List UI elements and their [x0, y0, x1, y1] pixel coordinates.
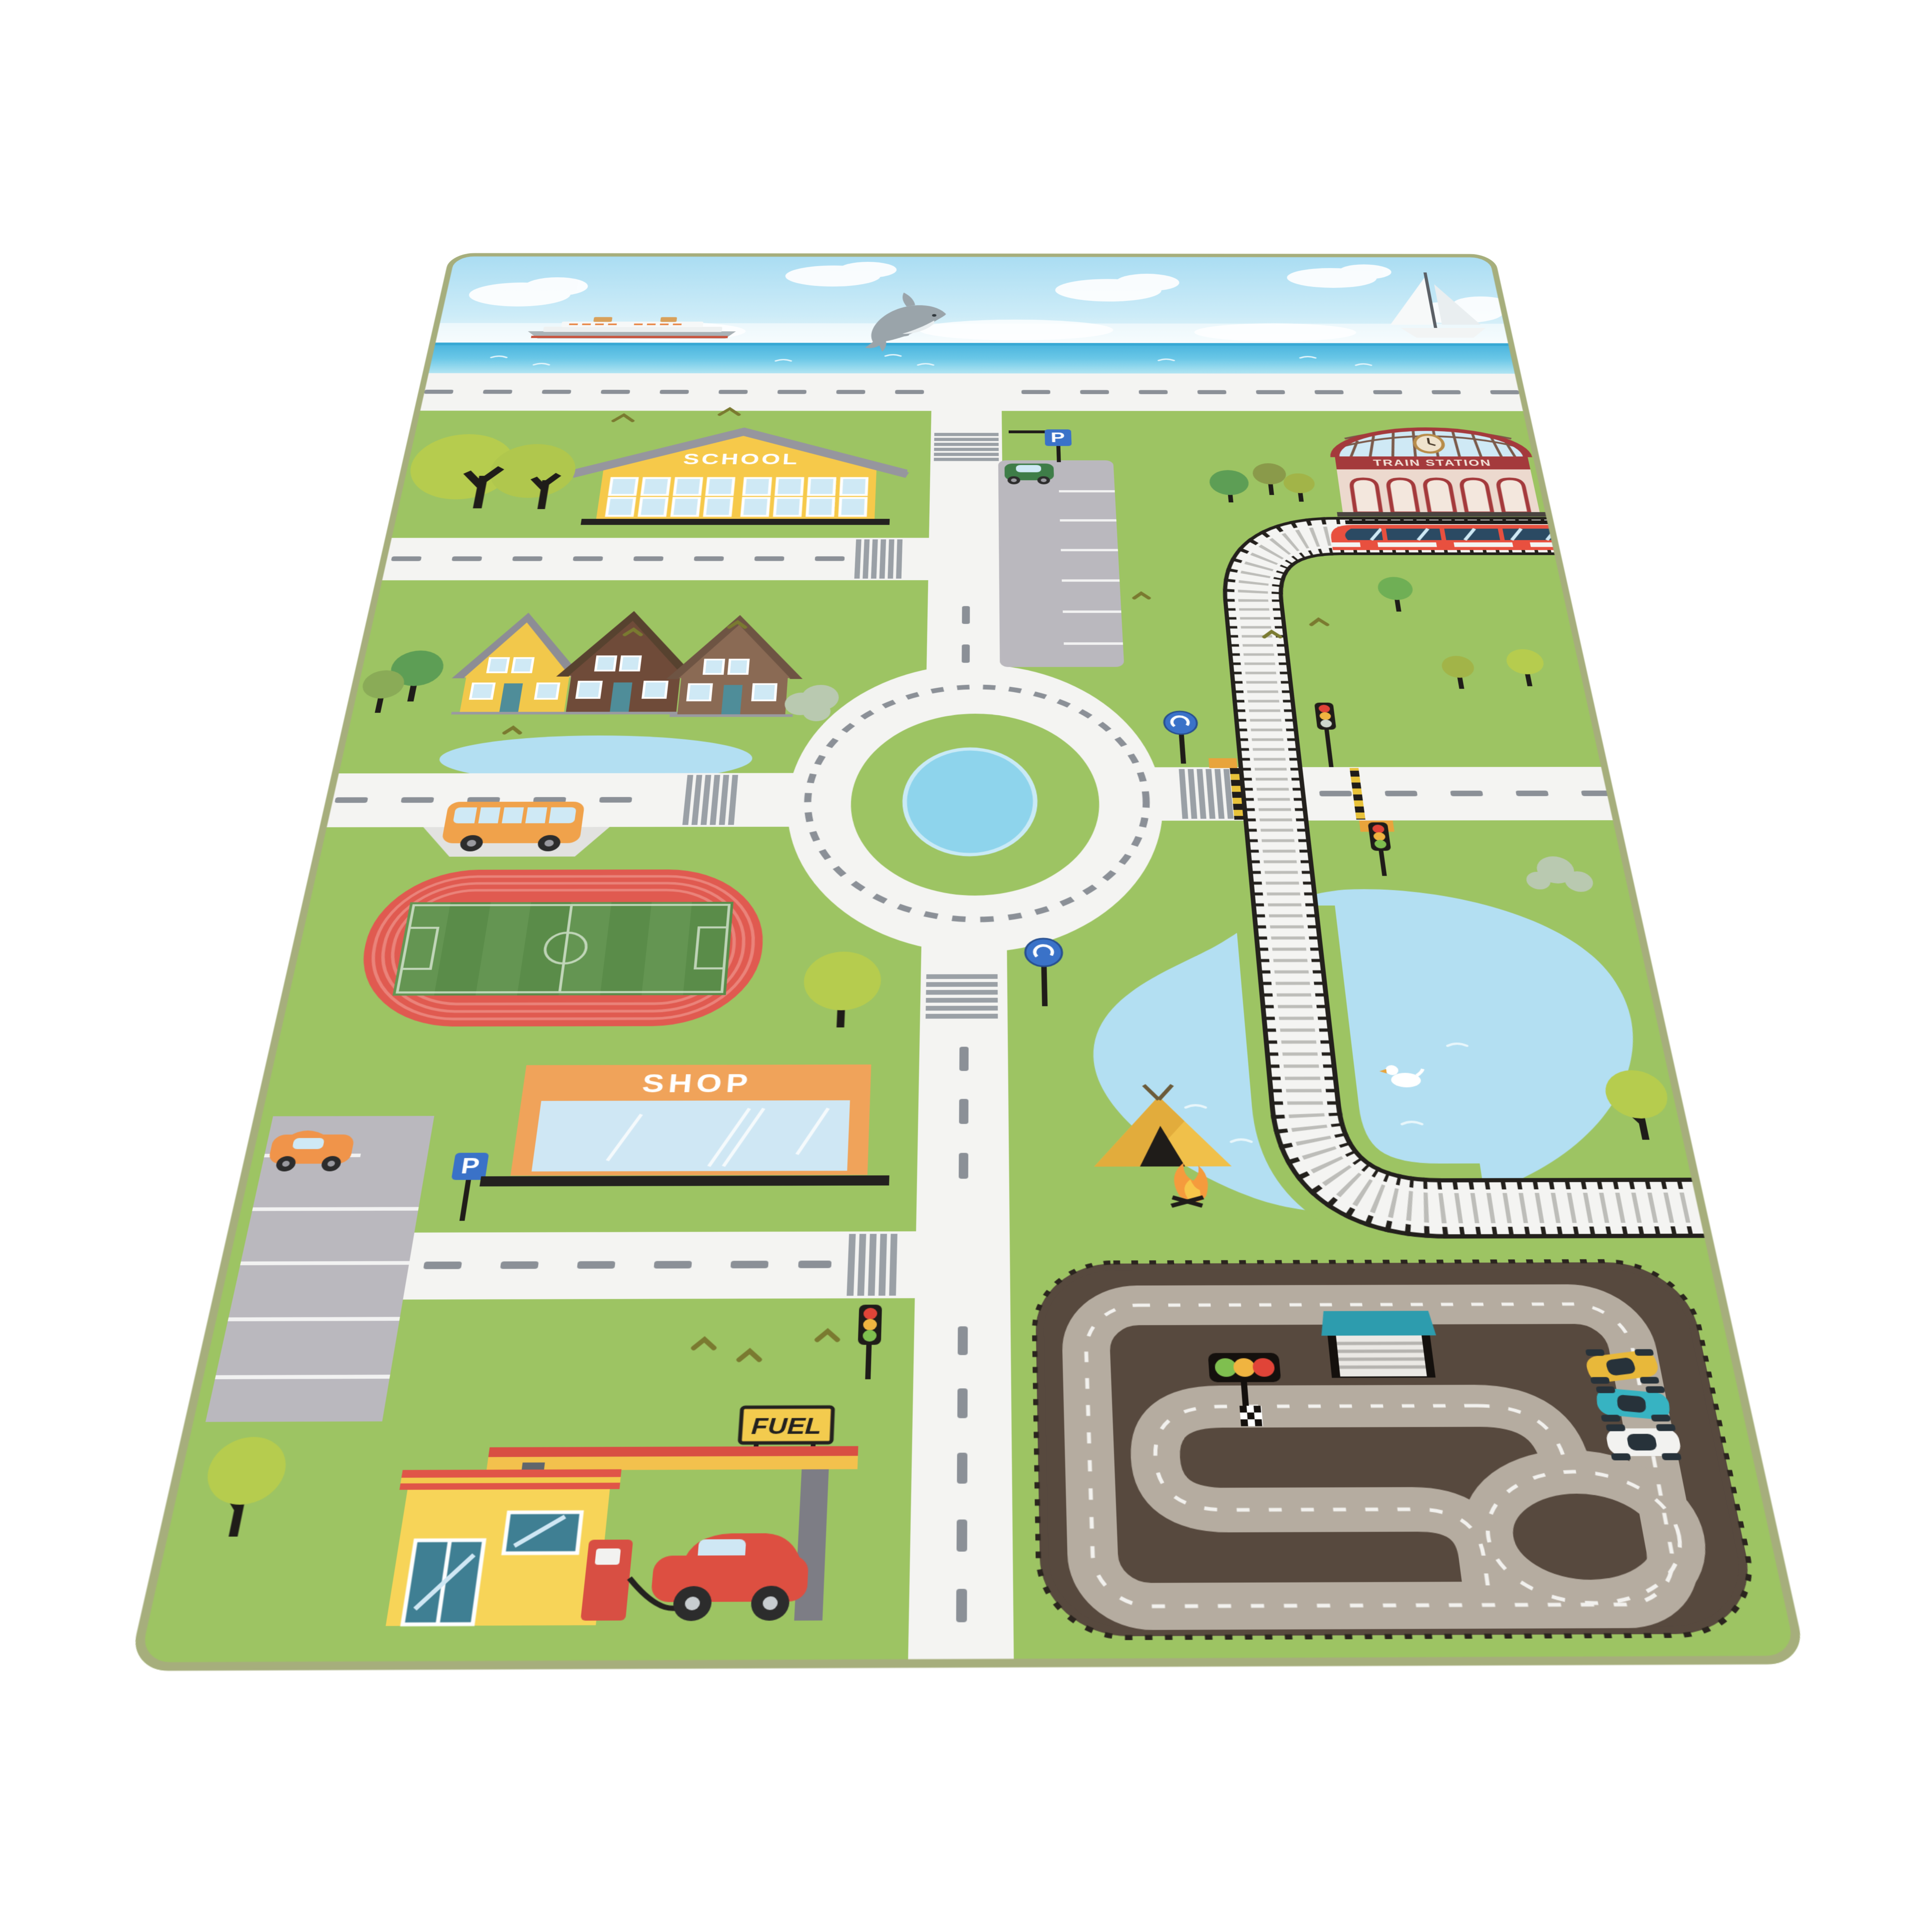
svg-text:SHOP: SHOP: [641, 1069, 753, 1098]
svg-text:FUEL: FUEL: [751, 1414, 822, 1439]
svg-text:SCHOOL: SCHOOL: [682, 451, 800, 468]
svg-text:TRAIN STATION: TRAIN STATION: [1373, 458, 1492, 468]
svg-text:P: P: [459, 1153, 481, 1178]
svg-text:P: P: [1051, 430, 1065, 445]
